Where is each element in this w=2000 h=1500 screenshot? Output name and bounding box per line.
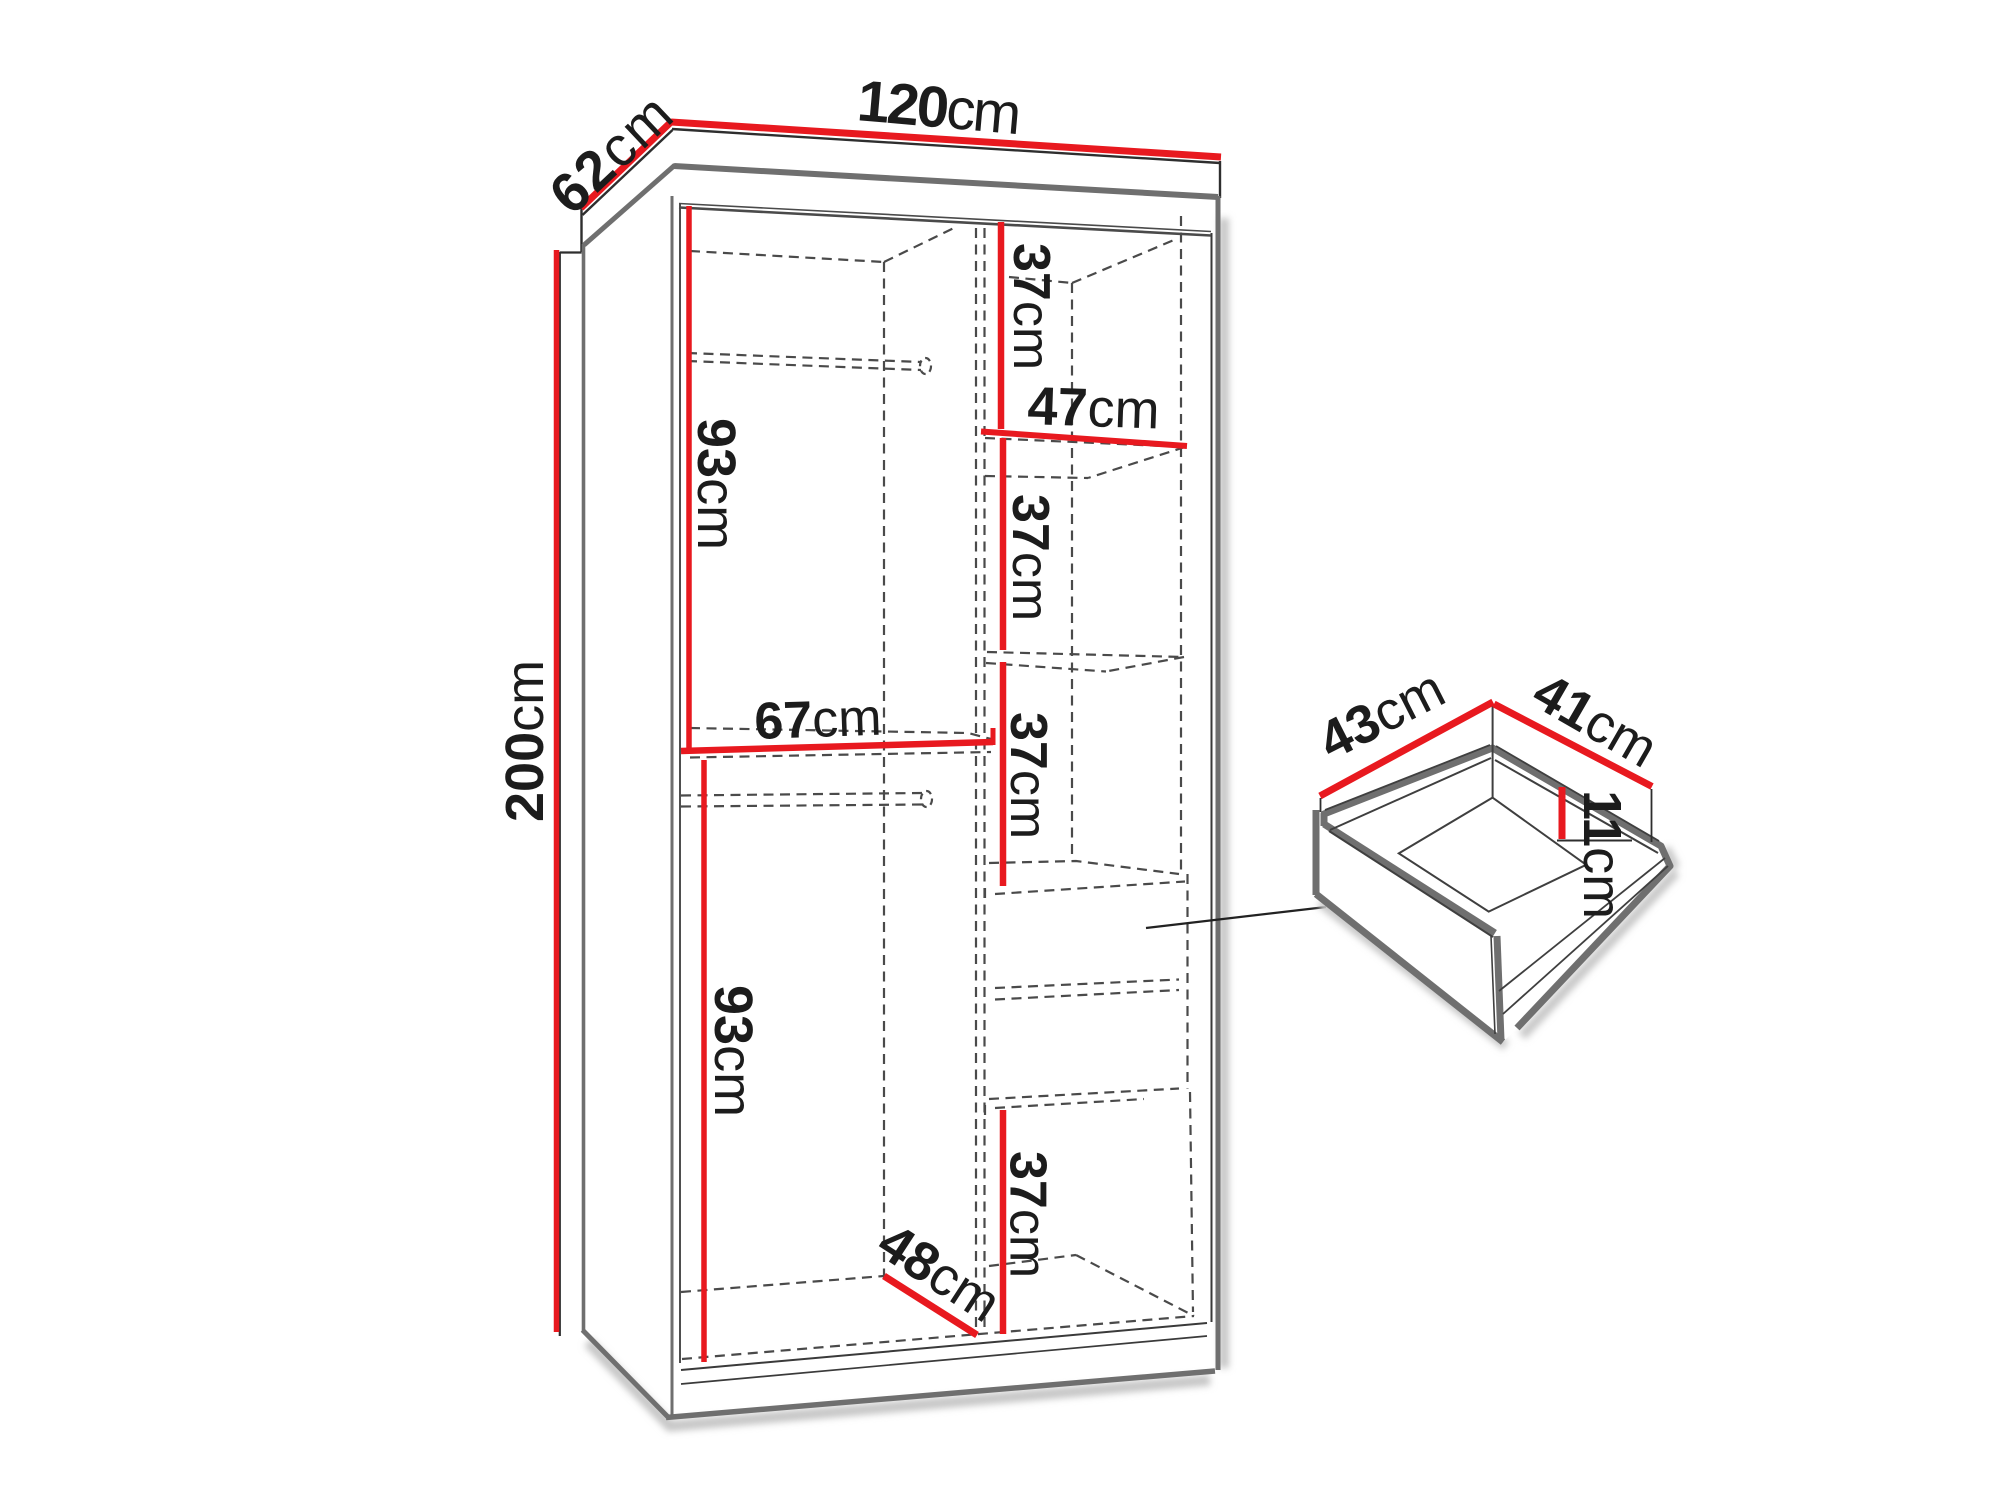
svg-text:200cm: 200cm <box>495 660 555 822</box>
svg-text:47cm: 47cm <box>1027 376 1161 441</box>
svg-text:93cm: 93cm <box>703 985 763 1117</box>
svg-text:37cm: 37cm <box>1001 494 1059 621</box>
svg-text:11cm: 11cm <box>1572 790 1632 919</box>
svg-text:93cm: 93cm <box>686 418 746 550</box>
svg-text:67cm: 67cm <box>753 689 882 751</box>
svg-text:37cm: 37cm <box>1002 243 1060 370</box>
svg-text:41cm: 41cm <box>1523 661 1667 779</box>
svg-text:62cm: 62cm <box>537 80 686 225</box>
svg-text:37cm: 37cm <box>999 712 1057 839</box>
svg-text:37cm: 37cm <box>999 1151 1057 1278</box>
svg-text:43cm: 43cm <box>1309 658 1454 771</box>
svg-text:48cm: 48cm <box>867 1212 1010 1334</box>
